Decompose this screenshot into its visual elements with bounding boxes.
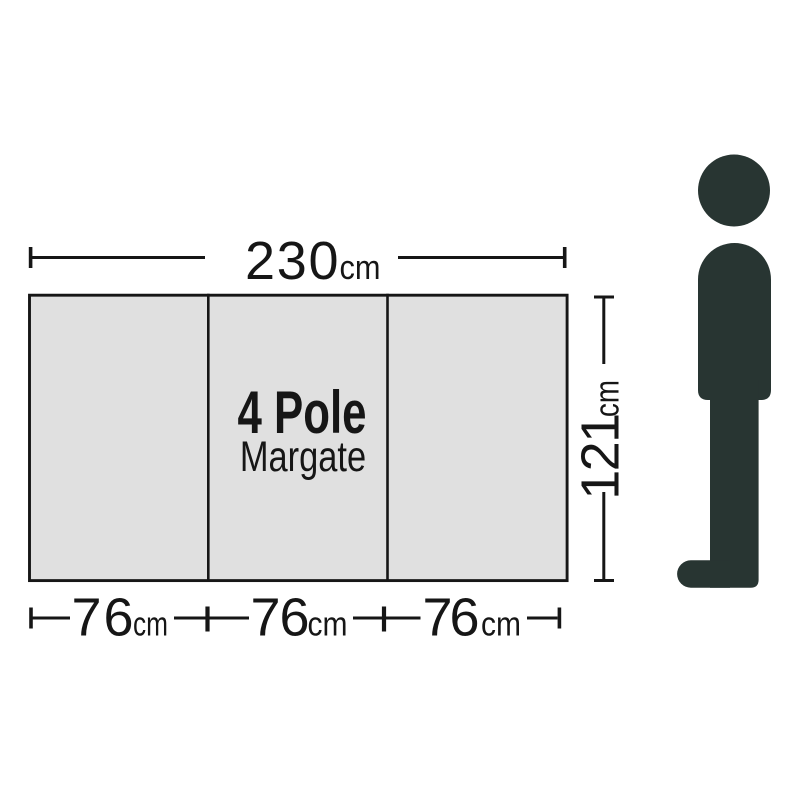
svg-text:cm: cm (340, 249, 381, 287)
svg-text:cm: cm (589, 380, 627, 417)
svg-text:121: 121 (571, 413, 631, 500)
svg-text:cm: cm (133, 606, 168, 644)
svg-text:76: 76 (72, 588, 134, 648)
svg-text:230: 230 (245, 231, 339, 291)
svg-text:cm: cm (481, 606, 521, 644)
svg-text:76: 76 (423, 588, 480, 648)
svg-text:cm: cm (308, 606, 348, 644)
svg-text:Margate: Margate (240, 434, 366, 481)
svg-text:76: 76 (251, 588, 310, 648)
